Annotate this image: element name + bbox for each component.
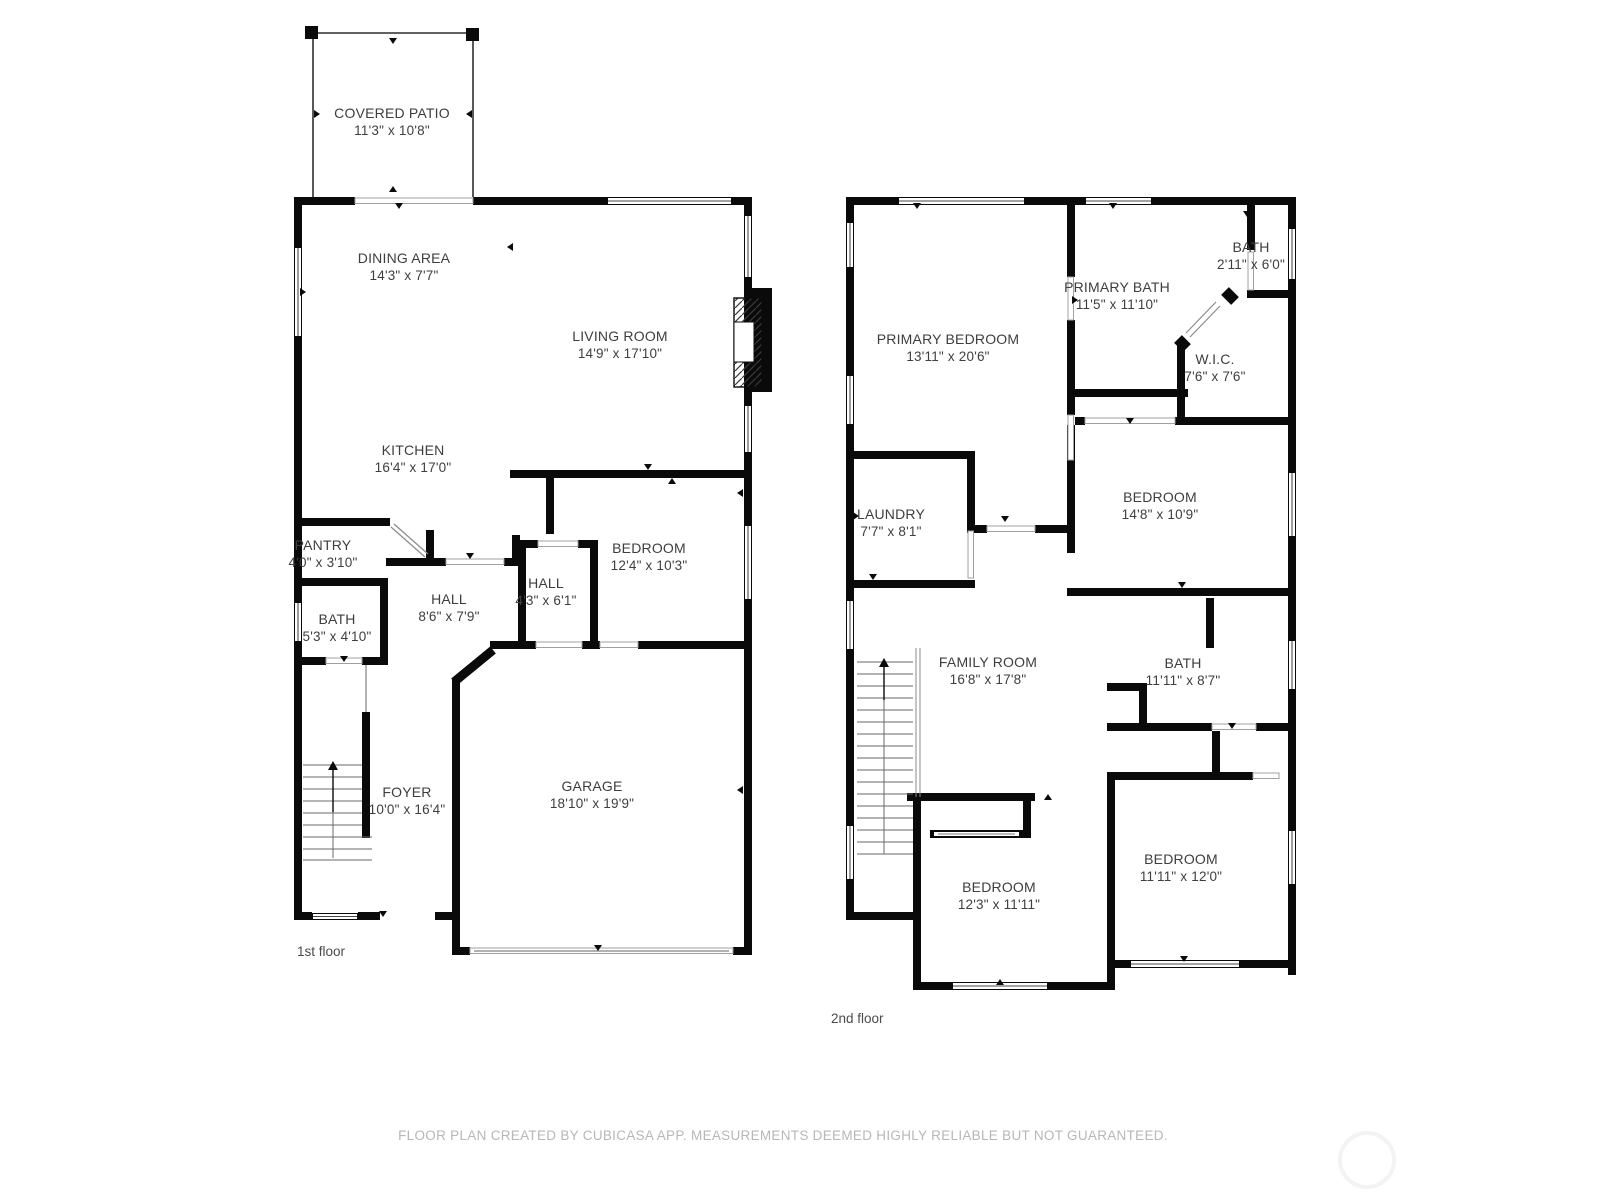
room-label-foyer: FOYER 10'0" x 16'4" (369, 784, 446, 818)
room-label-bath-small: BATH 2'11" x 6'0" (1217, 239, 1285, 273)
room-dims: 5'3" x 4'10" (303, 628, 372, 645)
room-name: BATH (1146, 655, 1221, 672)
room-label-bedroom-right: BEDROOM 14'8" x 10'9" (1122, 489, 1199, 523)
room-label-hall: HALL 8'6" x 7'9" (418, 591, 479, 625)
floor1-plan (294, 26, 772, 955)
closet-doors-icon (934, 832, 1019, 836)
wic-door-icon (1178, 291, 1235, 348)
room-name: W.I.C. (1184, 351, 1245, 368)
room-label-primary-bath: PRIMARY BATH 11'5" x 11'10" (1064, 279, 1170, 313)
room-label-garage: GARAGE 18'10" x 19'9" (550, 778, 634, 812)
room-label-covered-patio: COVERED PATIO 11'3" x 10'8" (334, 105, 450, 139)
room-name: HALL (418, 591, 479, 608)
room-dims: 7'7" x 8'1" (857, 523, 925, 540)
room-name: PANTRY (289, 537, 358, 554)
room-label-kitchen: KITCHEN 16'4" x 17'0" (375, 442, 452, 476)
floor-plan-drawing (0, 0, 1600, 1200)
room-label-bedroom-bottom-left: BEDROOM 12'3" x 11'11" (958, 879, 1040, 913)
room-name: PRIMARY BEDROOM (877, 331, 1020, 348)
room-label-laundry: LAUNDRY 7'7" x 8'1" (857, 506, 925, 540)
room-label-bath-1f: BATH 5'3" x 4'10" (303, 611, 372, 645)
room-dims: 7'6" x 7'6" (1184, 368, 1245, 385)
floor1-stairs-icon (303, 665, 372, 860)
floor2-plan (846, 197, 1296, 990)
room-dims: 11'11" x 8'7" (1146, 672, 1221, 689)
room-dims: 18'10" x 19'9" (550, 795, 634, 812)
room-label-pantry: PANTRY 4'0" x 3'10" (289, 537, 358, 571)
room-dims: 4'3" x 6'1" (515, 592, 576, 609)
garage-diagonal-wall (454, 650, 493, 682)
room-name: GARAGE (550, 778, 634, 795)
room-dims: 11'5" x 11'10" (1064, 296, 1170, 313)
floor2-stairs-up-arrow (879, 658, 889, 700)
room-dims: 2'11" x 6'0" (1217, 256, 1285, 273)
room-dims: 16'4" x 17'0" (375, 459, 452, 476)
room-label-hall-small: HALL 4'3" x 6'1" (515, 575, 576, 609)
room-name: DINING AREA (358, 250, 450, 267)
floor1-label: 1st floor (297, 944, 345, 959)
room-label-family-room: FAMILY ROOM 16'8" x 17'8" (939, 654, 1037, 688)
room-dims: 14'8" x 10'9" (1122, 506, 1199, 523)
room-dims: 14'9" x 17'10" (572, 345, 668, 362)
floor1-stairs-up-arrow (328, 761, 338, 812)
room-label-wic: W.I.C. 7'6" x 7'6" (1184, 351, 1245, 385)
room-dims: 14'3" x 7'7" (358, 267, 450, 284)
room-name: COVERED PATIO (334, 105, 450, 122)
room-dims: 8'6" x 7'9" (418, 608, 479, 625)
room-label-bath-2f: BATH 11'11" x 8'7" (1146, 655, 1221, 689)
room-dims: 13'11" x 20'6" (877, 348, 1020, 365)
floor2-label: 2nd floor (831, 1011, 884, 1026)
room-name: BATH (303, 611, 372, 628)
cubicasa-watermark-icon (1338, 1131, 1396, 1189)
room-name: LIVING ROOM (572, 328, 668, 345)
room-label-primary-bedroom: PRIMARY BEDROOM 13'11" x 20'6" (877, 331, 1020, 365)
floor2-stairs-icon (857, 648, 920, 854)
room-name: FOYER (369, 784, 446, 801)
room-label-bedroom-1f: BEDROOM 12'4" x 10'3" (611, 540, 688, 574)
room-name: BEDROOM (1140, 851, 1222, 868)
disclaimer-text: FLOOR PLAN CREATED BY CUBICASA APP. MEAS… (398, 1128, 1168, 1143)
room-dims: 12'3" x 11'11" (958, 896, 1040, 913)
room-name: HALL (515, 575, 576, 592)
room-dims: 10'0" x 16'4" (369, 801, 446, 818)
room-name: LAUNDRY (857, 506, 925, 523)
room-dims: 11'3" x 10'8" (334, 122, 450, 139)
room-label-bedroom-bottom-right: BEDROOM 11'11" x 12'0" (1140, 851, 1222, 885)
room-name: BEDROOM (611, 540, 688, 557)
fireplace-icon (734, 288, 772, 392)
room-name: BEDROOM (958, 879, 1040, 896)
room-dims: 12'4" x 10'3" (611, 557, 688, 574)
room-dims: 11'11" x 12'0" (1140, 868, 1222, 885)
room-name: FAMILY ROOM (939, 654, 1037, 671)
room-name: KITCHEN (375, 442, 452, 459)
room-label-dining-area: DINING AREA 14'3" x 7'7" (358, 250, 450, 284)
room-name: PRIMARY BATH (1064, 279, 1170, 296)
room-dims: 4'0" x 3'10" (289, 554, 358, 571)
floor-plan-page: COVERED PATIO 11'3" x 10'8" DINING AREA … (0, 0, 1600, 1200)
pantry-door-icon (391, 524, 428, 557)
room-dims: 16'8" x 17'8" (939, 671, 1037, 688)
room-name: BATH (1217, 239, 1285, 256)
room-name: BEDROOM (1122, 489, 1199, 506)
room-label-living-room: LIVING ROOM 14'9" x 17'10" (572, 328, 668, 362)
